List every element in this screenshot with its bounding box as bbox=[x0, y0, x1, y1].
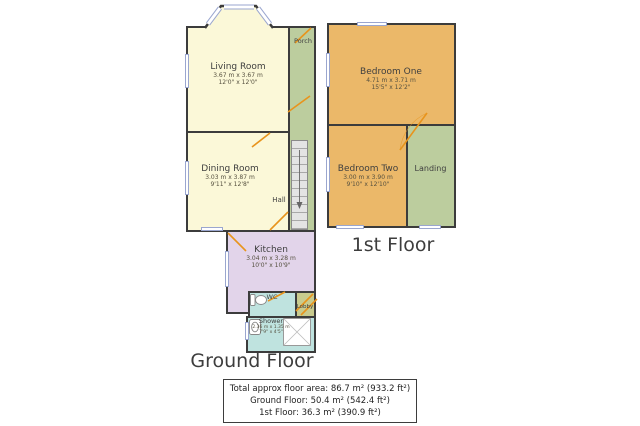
summary-first-floor: 1st Floor: 36.3 m² (390.9 ft²) bbox=[225, 407, 415, 419]
label-dining-room: Dining Room 3.03 m x 3.87 m 9'11" x 12'8… bbox=[186, 164, 274, 188]
ground-floor-title: Ground Floor bbox=[188, 350, 316, 372]
stairs-arrow-icon bbox=[297, 150, 303, 209]
door-hall-kitchen bbox=[270, 212, 288, 230]
room-dim-imperial: 10'0" x 10'9" bbox=[232, 262, 310, 269]
first-floor-title: 1st Floor bbox=[329, 234, 457, 256]
room-name: Lobby bbox=[295, 304, 315, 310]
area-summary-box: Total approx floor area: 86.7 m² (933.2 … bbox=[223, 379, 417, 423]
label-landing: Landing bbox=[407, 164, 454, 173]
label-shower: Shower 2.36 m x 1.35 m 7'9" x 4'5" bbox=[252, 318, 290, 335]
room-name: Shower bbox=[252, 318, 290, 325]
room-dim-imperial: 12'0" x 12'0" bbox=[188, 79, 288, 86]
room-name: Landing bbox=[407, 164, 454, 173]
room-name: Bedroom One bbox=[341, 67, 441, 77]
room-dim-imperial: 7'9" x 4'5" bbox=[252, 330, 290, 335]
room-dim-metric: 3.00 m x 3.90 m bbox=[331, 174, 405, 181]
room-name: Bedroom Two bbox=[331, 164, 405, 174]
door-living bbox=[288, 96, 310, 112]
room-name: Porch bbox=[291, 38, 315, 45]
summary-ground-floor: Ground Floor: 50.4 m² (542.4 ft²) bbox=[225, 395, 415, 407]
room-name: WC bbox=[261, 294, 283, 301]
room-name: Hall bbox=[268, 197, 290, 204]
summary-total: Total approx floor area: 86.7 m² (933.2 … bbox=[225, 383, 415, 395]
room-dim-metric: 3.03 m x 3.87 m bbox=[186, 174, 274, 181]
floorplan-canvas: Living Room 3.67 m x 3.67 m 12'0" x 12'0… bbox=[0, 0, 640, 426]
label-porch: Porch bbox=[291, 38, 315, 45]
room-dim-imperial: 9'10" x 12'10" bbox=[331, 181, 405, 188]
room-dim-metric: 3.67 m x 3.67 m bbox=[188, 72, 288, 79]
label-wc: WC bbox=[261, 294, 283, 301]
door-bedroom-one bbox=[400, 113, 427, 150]
label-kitchen: Kitchen 3.04 m x 3.28 m 10'0" x 10'9" bbox=[232, 245, 310, 269]
label-bedroom-two: Bedroom Two 3.00 m x 3.90 m 9'10" x 12'1… bbox=[331, 164, 405, 188]
room-name: Living Room bbox=[188, 62, 288, 72]
room-name: Kitchen bbox=[232, 245, 310, 255]
bay-window bbox=[205, 6, 273, 28]
room-dim-imperial: 9'11" x 12'8" bbox=[186, 181, 274, 188]
room-dim-metric: 4.71 m x 3.71 m bbox=[341, 77, 441, 84]
label-lobby: Lobby bbox=[295, 304, 315, 310]
room-name: Dining Room bbox=[186, 164, 274, 174]
label-living-room: Living Room 3.67 m x 3.67 m 12'0" x 12'0… bbox=[188, 62, 288, 86]
label-bedroom-one: Bedroom One 4.71 m x 3.71 m 15'5" x 12'2… bbox=[341, 67, 441, 91]
room-dim-imperial: 15'5" x 12'2" bbox=[341, 84, 441, 91]
label-hall: Hall bbox=[268, 197, 290, 204]
room-dim-metric: 3.04 m x 3.28 m bbox=[232, 255, 310, 262]
plan-overlay bbox=[0, 0, 640, 426]
door-dining bbox=[252, 133, 270, 147]
